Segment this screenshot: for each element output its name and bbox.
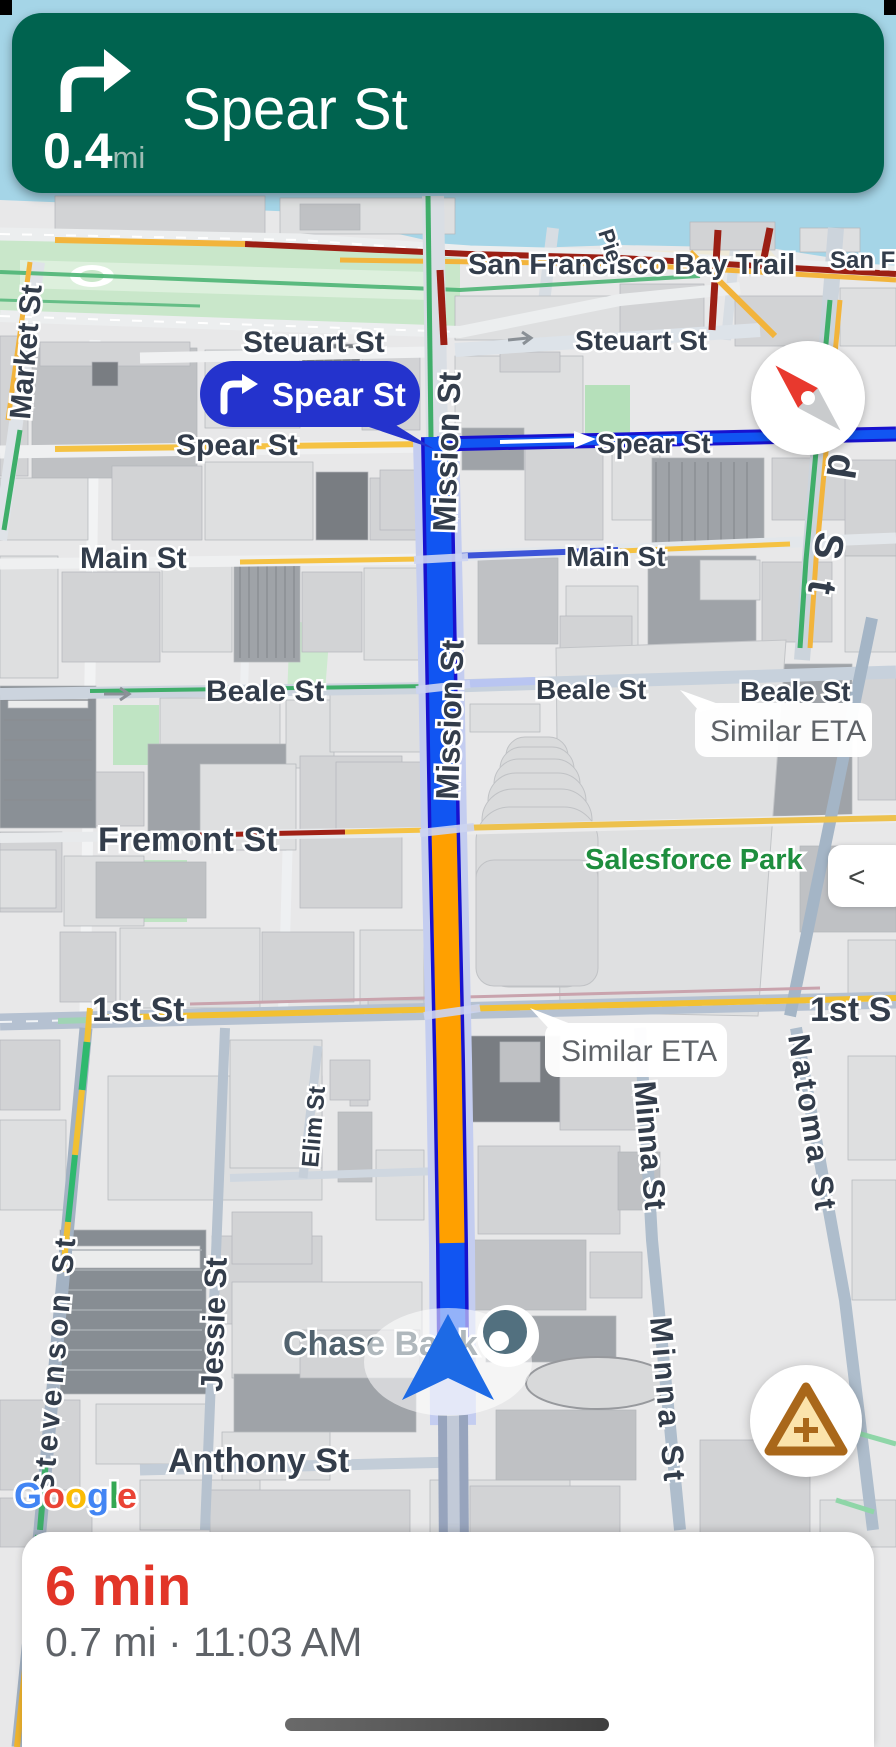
svg-text:Jessie St: Jessie St	[194, 1257, 234, 1393]
svg-text:Mission St: Mission St	[429, 639, 471, 801]
svg-text:Beale St: Beale St	[536, 674, 647, 705]
svg-text:Beale St: Beale St	[740, 676, 851, 707]
svg-text:Salesforce Park: Salesforce Park	[585, 844, 804, 876]
svg-text:Mission St: Mission St	[426, 371, 468, 533]
svg-text:g: g	[87, 1475, 109, 1516]
svg-text:e: e	[117, 1475, 137, 1516]
svg-text:Main St: Main St	[80, 542, 187, 575]
svg-text:1st S: 1st S	[810, 991, 891, 1029]
svg-text:Similar ETA: Similar ETA	[710, 715, 866, 748]
svg-text:San Francisco Bay Trail: San Francisco Bay Trail	[468, 249, 795, 281]
svg-text:San Fran: San Fran	[830, 247, 896, 274]
svg-text:Similar ETA: Similar ETA	[561, 1035, 717, 1068]
svg-text:Spear St: Spear St	[272, 376, 406, 413]
svg-text:Steuart St: Steuart St	[575, 325, 707, 356]
svg-text:<: <	[848, 861, 866, 894]
svg-text:Anthony St: Anthony St	[168, 1442, 349, 1480]
svg-text:Beale St: Beale St	[206, 675, 324, 708]
svg-text:o: o	[65, 1475, 87, 1516]
svg-text:1st St: 1st St	[92, 991, 185, 1029]
svg-text:Steuart St: Steuart St	[243, 326, 385, 359]
svg-text:Fremont St: Fremont St	[98, 821, 277, 859]
svg-text:Main St: Main St	[566, 541, 666, 572]
svg-text:Spear St: Spear St	[176, 429, 298, 462]
svg-text:o: o	[43, 1475, 65, 1516]
svg-text:Spear St: Spear St	[597, 428, 711, 459]
svg-text:G: G	[14, 1475, 42, 1516]
